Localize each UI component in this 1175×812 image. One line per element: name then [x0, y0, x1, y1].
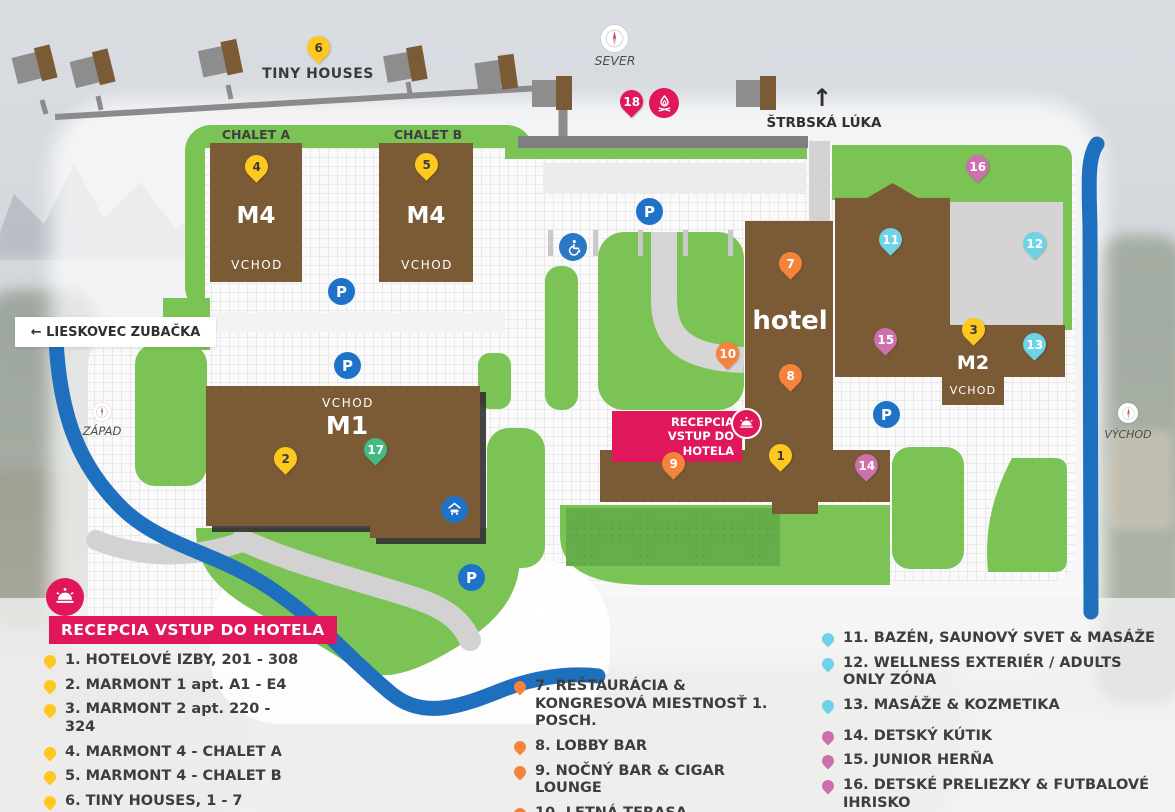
- chalet-b-label: CHALET B: [394, 127, 462, 142]
- legend-item-label: 3. MARMONT 2 apt. 220 - 324: [65, 701, 304, 736]
- legend-item-label: 13. MASÁŽE & KOZMETIKA: [843, 697, 1060, 715]
- building-hotel-wing-stub: [772, 502, 818, 514]
- compass-west-icon: [93, 403, 111, 421]
- legend-pin-pink-icon: [820, 753, 837, 770]
- legend-pin-orange-icon: [512, 806, 529, 812]
- legend-item: 3. MARMONT 2 apt. 220 - 324: [44, 701, 304, 736]
- compass-west-label: ZÁPAD: [83, 424, 122, 438]
- legend-pin-orange-icon: [512, 739, 529, 756]
- m2-label: M2: [957, 352, 989, 374]
- legend-item: 14. DETSKÝ KÚTIK: [822, 728, 1167, 746]
- legend-item: 12. WELLNESS EXTERIÉR / ADULTS ONLY ZÓNA: [822, 655, 1167, 690]
- legend-item: 15. JUNIOR HERŇA: [822, 752, 1167, 770]
- hotel-label: hotel: [752, 306, 827, 336]
- legend-item-label: 10. LETNÁ TERASA: [535, 805, 687, 812]
- m4a-entrance-label: VCHOD: [231, 258, 283, 272]
- compass-north-icon: [601, 25, 628, 52]
- legend-pin-cyan-icon: [820, 631, 837, 648]
- legend-pin-yellow-icon: [42, 744, 59, 761]
- strbska-luka-arrow: ↑: [812, 84, 832, 112]
- legend-item: 1. HOTELOVÉ IZBY, 201 - 308: [44, 652, 304, 670]
- tiny-house: [736, 76, 782, 110]
- legend-item: 7. REŠTAURÁCIA & KONGRESOVÁ MIESTNOSŤ 1.…: [514, 678, 776, 731]
- map-marker-number: 7: [786, 257, 794, 269]
- legend-pin-cyan-icon: [820, 655, 837, 672]
- legend-item: 5. MARMONT 4 - CHALET B: [44, 768, 304, 786]
- legend-pin-yellow-icon: [42, 794, 59, 811]
- legend-item-label: 14. DETSKÝ KÚTIK: [843, 728, 992, 746]
- legend-item-label: 8. LOBBY BAR: [535, 738, 647, 756]
- tiny-houses-label: TINY HOUSES: [262, 66, 374, 82]
- legend-pin-orange-icon: [512, 763, 529, 780]
- chalet-a-label: CHALET A: [222, 127, 290, 142]
- legend-item: 10. LETNÁ TERASA: [514, 805, 776, 812]
- legend-item-label: 2. MARMONT 1 apt. A1 - E4: [65, 677, 287, 695]
- tiny-house-body: [760, 76, 776, 110]
- legend-item-label: 6. TINY HOUSES, 1 - 7: [65, 793, 243, 811]
- reception-map-line1: RECEPCIA: [620, 415, 734, 429]
- legend-pin-yellow-icon: [42, 677, 59, 694]
- map-marker-number: 17: [367, 443, 384, 455]
- m4a-label: M4: [237, 203, 276, 229]
- legend-pin-yellow-icon: [42, 769, 59, 786]
- tiny-house-body: [556, 76, 572, 110]
- parking-icon: P: [328, 278, 355, 305]
- map-marker-number: 4: [252, 160, 260, 172]
- reception-bell-icon: [733, 410, 760, 437]
- map-marker-number: 2: [281, 452, 289, 464]
- tiny-house: [474, 53, 524, 93]
- legend-reception-bell-icon: [46, 578, 84, 616]
- m1-entrance-label: VCHOD: [322, 396, 374, 410]
- legend-pin-yellow-icon: [42, 653, 59, 670]
- legend-item-label: 1. HOTELOVÉ IZBY, 201 - 308: [65, 652, 298, 670]
- legend-item-label: 15. JUNIOR HERŇA: [843, 752, 994, 770]
- map-marker-number: 15: [877, 333, 894, 345]
- parking-icon: P: [636, 198, 663, 225]
- tiny-house-body: [498, 54, 519, 90]
- legend-pin-yellow-icon: [42, 702, 59, 719]
- map-marker-number: 14: [858, 459, 875, 471]
- compass-east-icon: [1118, 403, 1138, 423]
- compass-east-label: VÝCHOD: [1104, 428, 1151, 441]
- legend-pin-cyan-icon: [820, 698, 837, 715]
- legend-item-label: 5. MARMONT 4 - CHALET B: [65, 768, 282, 786]
- map-marker-number: 6: [314, 41, 322, 53]
- legend-item-label: 16. DETSKÉ PRELIEZKY & FUTBALOVÉ IHRISKO: [843, 777, 1167, 812]
- map-marker-number: 11: [882, 233, 899, 245]
- legend-item-label: 11. BAZÉN, SAUNOVÝ SVET & MASÁŽE: [843, 630, 1155, 648]
- campfire-icon: [649, 88, 679, 118]
- accessible-parking-icon: [559, 233, 587, 261]
- m1-label: M1: [326, 411, 368, 440]
- resort-map: CHALET A CHALET B M4 VCHOD M4 VCHOD VCHO…: [0, 0, 1175, 812]
- legend-item-label: 4. MARMONT 4 - CHALET A: [65, 744, 282, 762]
- map-marker-number: 18: [623, 95, 640, 107]
- legend-item: 2. MARMONT 1 apt. A1 - E4: [44, 677, 304, 695]
- legend-item: 16. DETSKÉ PRELIEZKY & FUTBALOVÉ IHRISKO: [822, 777, 1167, 812]
- parking-icon: P: [873, 401, 900, 428]
- legend-title: RECEPCIA VSTUP DO HOTELA: [49, 616, 337, 644]
- legend-column-accommodation: 1. HOTELOVÉ IZBY, 201 - 3082. MARMONT 1 …: [44, 652, 304, 812]
- map-marker-number: 10: [719, 347, 736, 359]
- legend-column-wellness-kids: 11. BAZÉN, SAUNOVÝ SVET & MASÁŽE12. WELL…: [822, 630, 1167, 812]
- m4b-label: M4: [407, 203, 446, 229]
- m4b-entrance-label: VCHOD: [401, 258, 453, 272]
- legend-pin-pink-icon: [820, 778, 837, 795]
- map-marker-number: 8: [786, 369, 794, 381]
- legend-item: 11. BAZÉN, SAUNOVÝ SVET & MASÁŽE: [822, 630, 1167, 648]
- legend-item-label: 7. REŠTAURÁCIA & KONGRESOVÁ MIESTNOSŤ 1.…: [535, 678, 776, 731]
- legend-item: 13. MASÁŽE & KOZMETIKA: [822, 697, 1167, 715]
- legend-item: 8. LOBBY BAR: [514, 738, 776, 756]
- lieskovec-band: ← LIESKOVEC ZUBAČKA: [15, 317, 216, 347]
- m2-entrance-label: VCHOD: [950, 384, 997, 397]
- legend-item-label: 9. NOČNÝ BAR & CIGAR LOUNGE: [535, 763, 776, 798]
- legend-item-label: 12. WELLNESS EXTERIÉR / ADULTS ONLY ZÓNA: [843, 655, 1167, 690]
- building-wellness: [835, 183, 950, 325]
- map-marker-number: 16: [969, 160, 986, 172]
- strbska-luka-label: ŠTRBSKÁ LÚKA: [767, 115, 882, 131]
- map-marker-number: 13: [1026, 338, 1043, 350]
- tiny-house: [532, 76, 578, 110]
- legend-item: 6. TINY HOUSES, 1 - 7: [44, 793, 304, 811]
- map-marker-number: 5: [422, 158, 430, 170]
- building-m1-extension: [370, 526, 480, 538]
- map-marker-number: 9: [669, 457, 677, 469]
- legend-column-dining: 7. REŠTAURÁCIA & KONGRESOVÁ MIESTNOSŤ 1.…: [514, 678, 776, 812]
- garage-icon: [441, 496, 468, 523]
- legend-pin-orange-icon: [512, 679, 529, 696]
- legend-item: 9. NOČNÝ BAR & CIGAR LOUNGE: [514, 763, 776, 798]
- legend-item: 4. MARMONT 4 - CHALET A: [44, 744, 304, 762]
- parking-icon: P: [458, 564, 485, 591]
- parking-icon: P: [334, 352, 361, 379]
- map-marker-number: 12: [1026, 237, 1043, 249]
- map-marker-number: 3: [969, 323, 977, 335]
- legend-pin-pink-icon: [820, 728, 837, 745]
- map-marker-number: 1: [776, 449, 784, 461]
- compass-north-label: SEVER: [595, 53, 636, 68]
